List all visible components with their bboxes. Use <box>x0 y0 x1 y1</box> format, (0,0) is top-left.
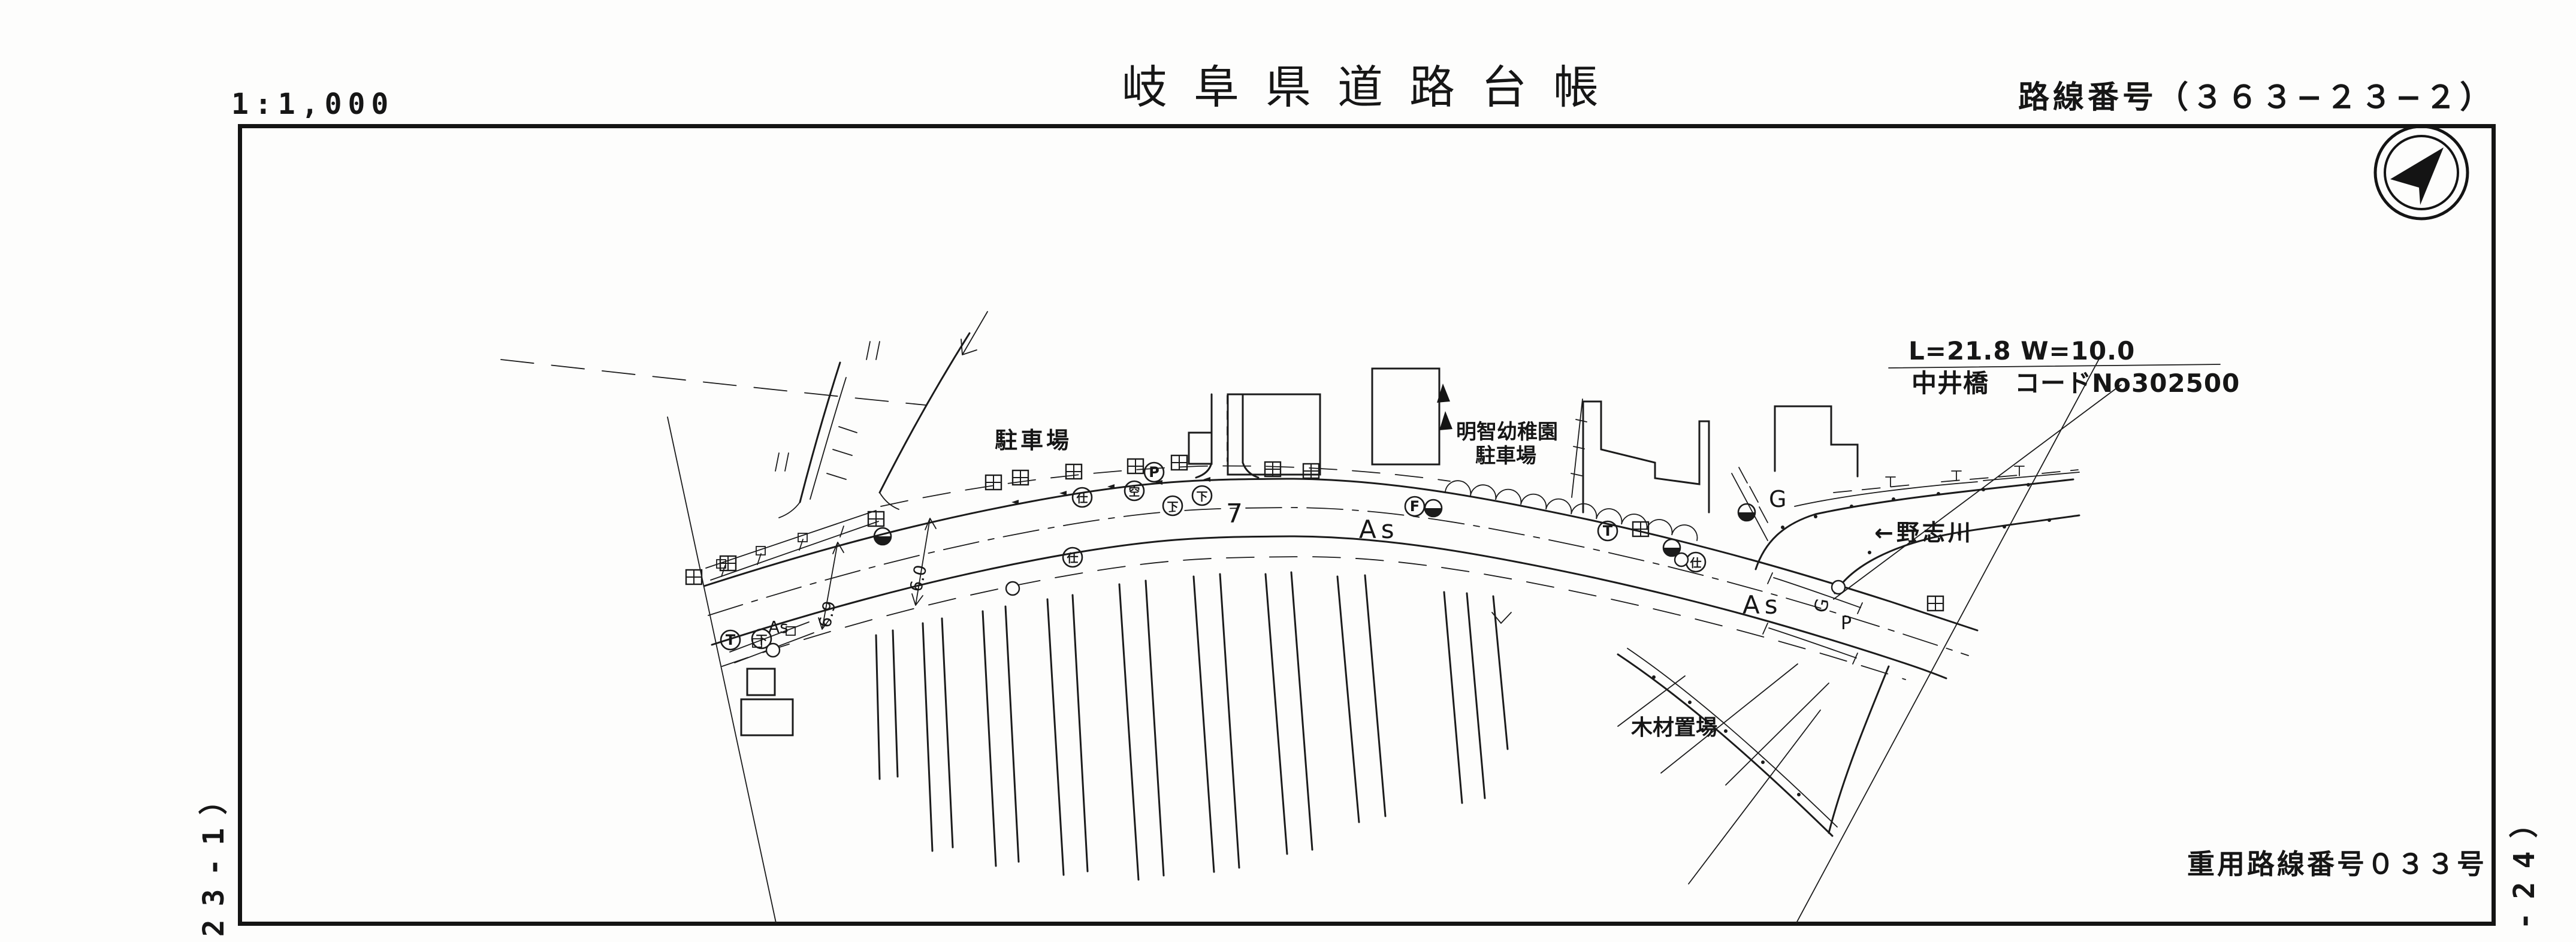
lumber-yard-lines <box>1618 664 1829 884</box>
catch-basin-cross <box>686 570 702 584</box>
bridge-name-code-label: 中井橋 コードNo302500 <box>1911 369 2240 398</box>
match-line-right <box>1796 352 2103 923</box>
hedge-scallops <box>1445 481 1697 541</box>
width-dim-label: 6.9 <box>815 599 840 629</box>
catch-basin-cross <box>1128 459 1143 473</box>
manhole-circle-symbol <box>1675 553 1688 566</box>
parcel-boundary-dashed <box>501 360 926 405</box>
fence-pole <box>1571 399 1587 497</box>
pavement-as-label: As <box>768 617 789 637</box>
circled-symbol-char: F <box>1410 498 1420 515</box>
manhole-circle-symbol <box>1006 582 1019 595</box>
gutter-label-rotated: G <box>1811 597 1834 614</box>
catch-basin-cross <box>1928 596 1943 611</box>
building-strips-lower <box>741 572 1508 880</box>
circled-symbol-char: P <box>1149 464 1159 481</box>
circled-symbol-char: 下 <box>1167 500 1178 514</box>
circled-symbol-char: 仕 <box>1076 491 1088 505</box>
kindergarten-label-line2: 駐車場 <box>1475 444 1536 468</box>
catch-basin-cross <box>1171 455 1187 470</box>
circled-symbol-char: T <box>1603 523 1613 539</box>
adjacent-sheet-ref-left: -23-1） <box>190 773 232 942</box>
manhole-circle-symbol <box>1832 581 1845 594</box>
parallel-tick-marks <box>775 342 880 471</box>
river-label: ←野志川 <box>1874 520 1974 546</box>
road-map-drawing: P空仕下下仕FT仕T下 駐車場 明智幼稚園 駐車場 ←野志川 木材置場 As A… <box>0 0 2576 942</box>
circled-symbol-char: 空 <box>1128 485 1140 499</box>
row-dashed-lower <box>722 557 1905 680</box>
half-filled-circle-fill <box>874 536 891 545</box>
pavement-as-label: As <box>1743 590 1783 620</box>
kindergarten-label-line1: 明智幼稚園 <box>1456 420 1558 444</box>
catch-basin-cross <box>986 475 1001 490</box>
parking-label: 駐車場 <box>995 427 1072 454</box>
manhole-circle-symbol <box>766 644 780 657</box>
lot-number-label: 7 <box>1226 499 1243 529</box>
half-filled-circle-fill <box>1425 508 1442 517</box>
circled-symbol-char: 仕 <box>1066 551 1078 565</box>
half-filled-circle-fill <box>1738 512 1755 521</box>
pavement-p-label: P <box>1841 613 1852 634</box>
width-dim-label: 6.0 <box>906 563 931 593</box>
river-banks <box>1618 466 2079 836</box>
pavement-as-label: As <box>1359 515 1399 544</box>
catch-basin-cross <box>1066 464 1082 479</box>
circled-symbol-char: 仕 <box>1689 556 1701 570</box>
match-line-left <box>668 417 776 923</box>
adjacent-sheet-ref-right: -24） <box>2500 796 2542 930</box>
catch-basin-cross <box>1303 464 1319 478</box>
gutter-label: G <box>1769 486 1786 512</box>
branch-road <box>779 312 987 518</box>
circled-symbol-char: T <box>726 632 736 648</box>
circled-symbol-char: 下 <box>756 633 767 647</box>
road-ledger-sheet: 1:1,000 岐阜県道路台帳 路線番号（３６３−２３−２） <box>0 0 2576 942</box>
lumber-yard-label: 木材置場 <box>1631 715 1717 740</box>
overlap-route-label: 重用路線番号０３３号 <box>2187 843 2487 882</box>
circled-symbol-char: 下 <box>1196 490 1207 503</box>
symbol-layer: P空仕下下仕FT仕T下 <box>686 455 1943 657</box>
bridge-dimensions-label: L=21.8 W=10.0 <box>1908 336 2135 366</box>
